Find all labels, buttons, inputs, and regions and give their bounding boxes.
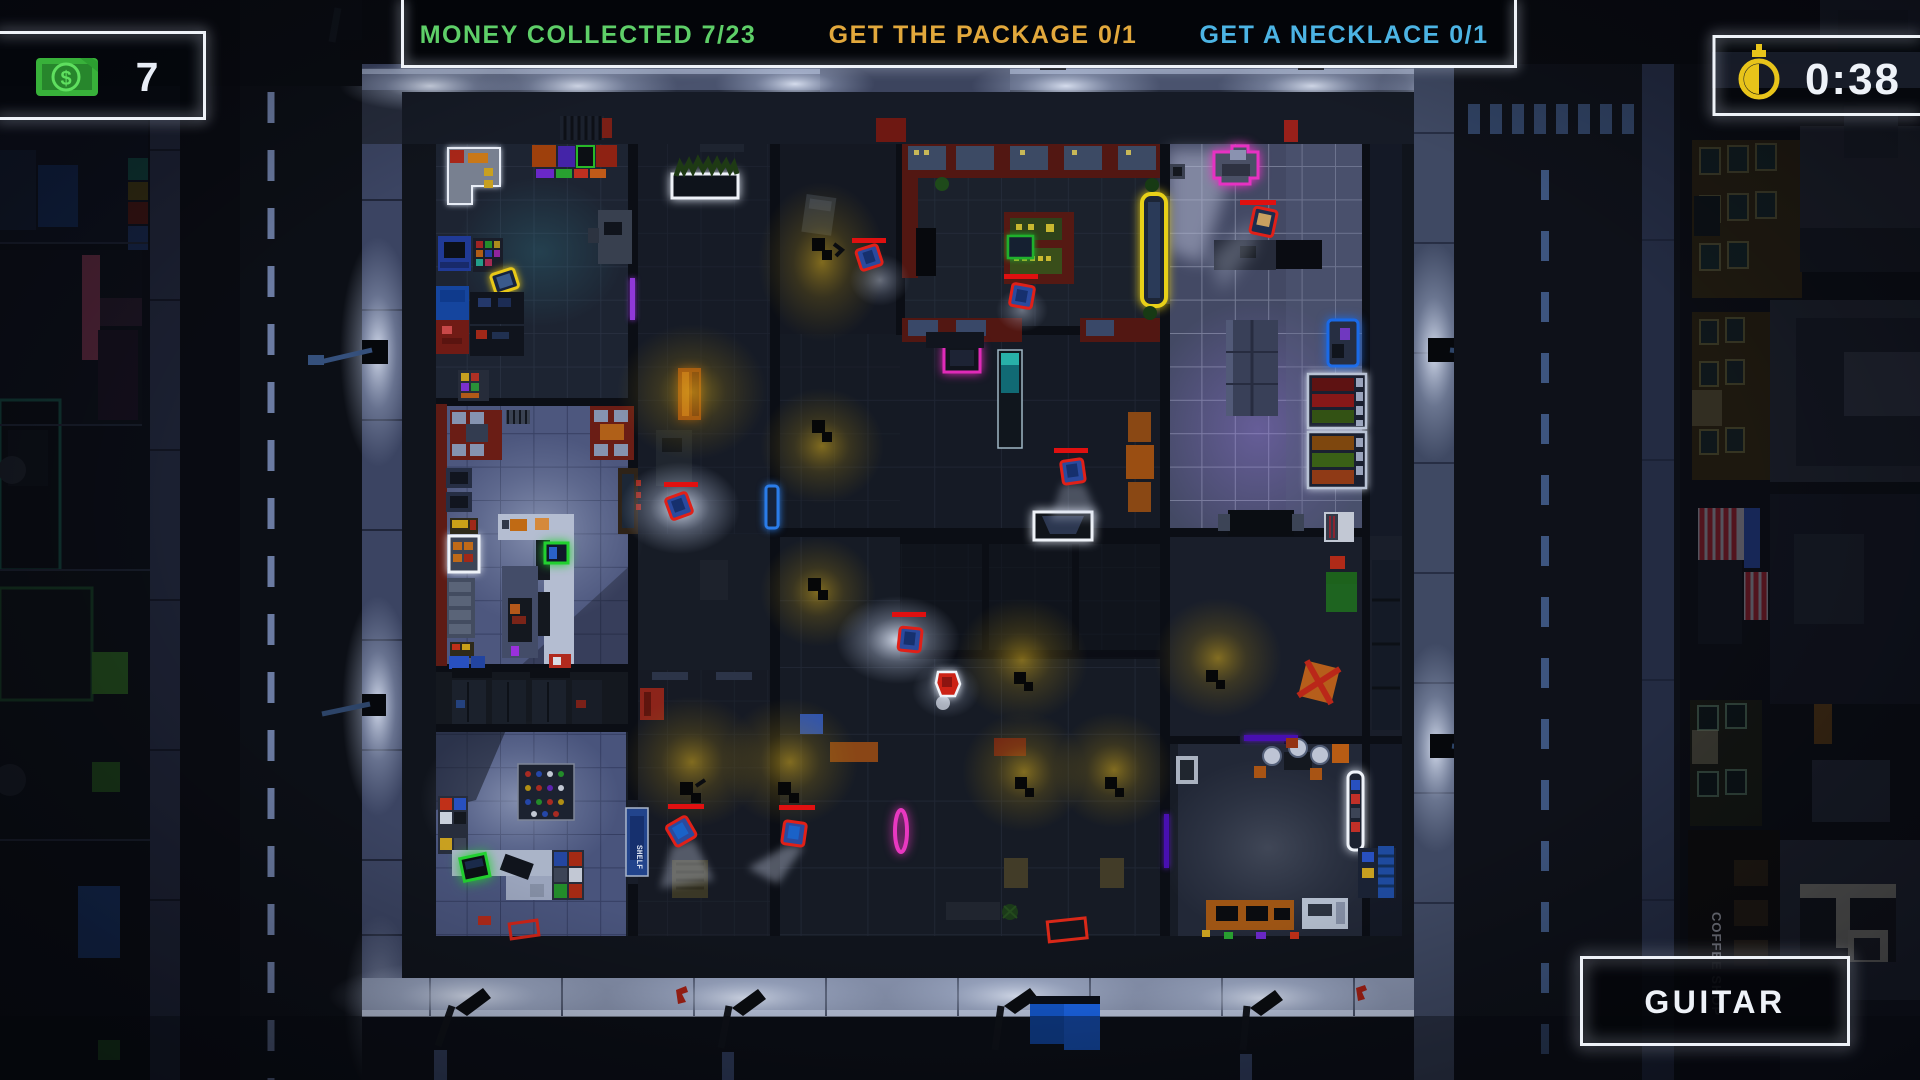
svg-text:$: $ <box>60 68 71 90</box>
svg-text:GUITAR: GUITAR <box>1644 984 1785 1020</box>
svg-text:GET A NECKLACE 0/1: GET A NECKLACE 0/1 <box>1199 21 1488 49</box>
svg-text:SHELF: SHELF <box>634 845 643 869</box>
svg-text:MONEY COLLECTED 7/23: MONEY COLLECTED 7/23 <box>420 21 757 49</box>
svg-text:0:38: 0:38 <box>1805 55 1901 104</box>
svg-text:GET THE PACKAGE 0/1: GET THE PACKAGE 0/1 <box>829 21 1138 49</box>
svg-text:7: 7 <box>136 54 159 100</box>
